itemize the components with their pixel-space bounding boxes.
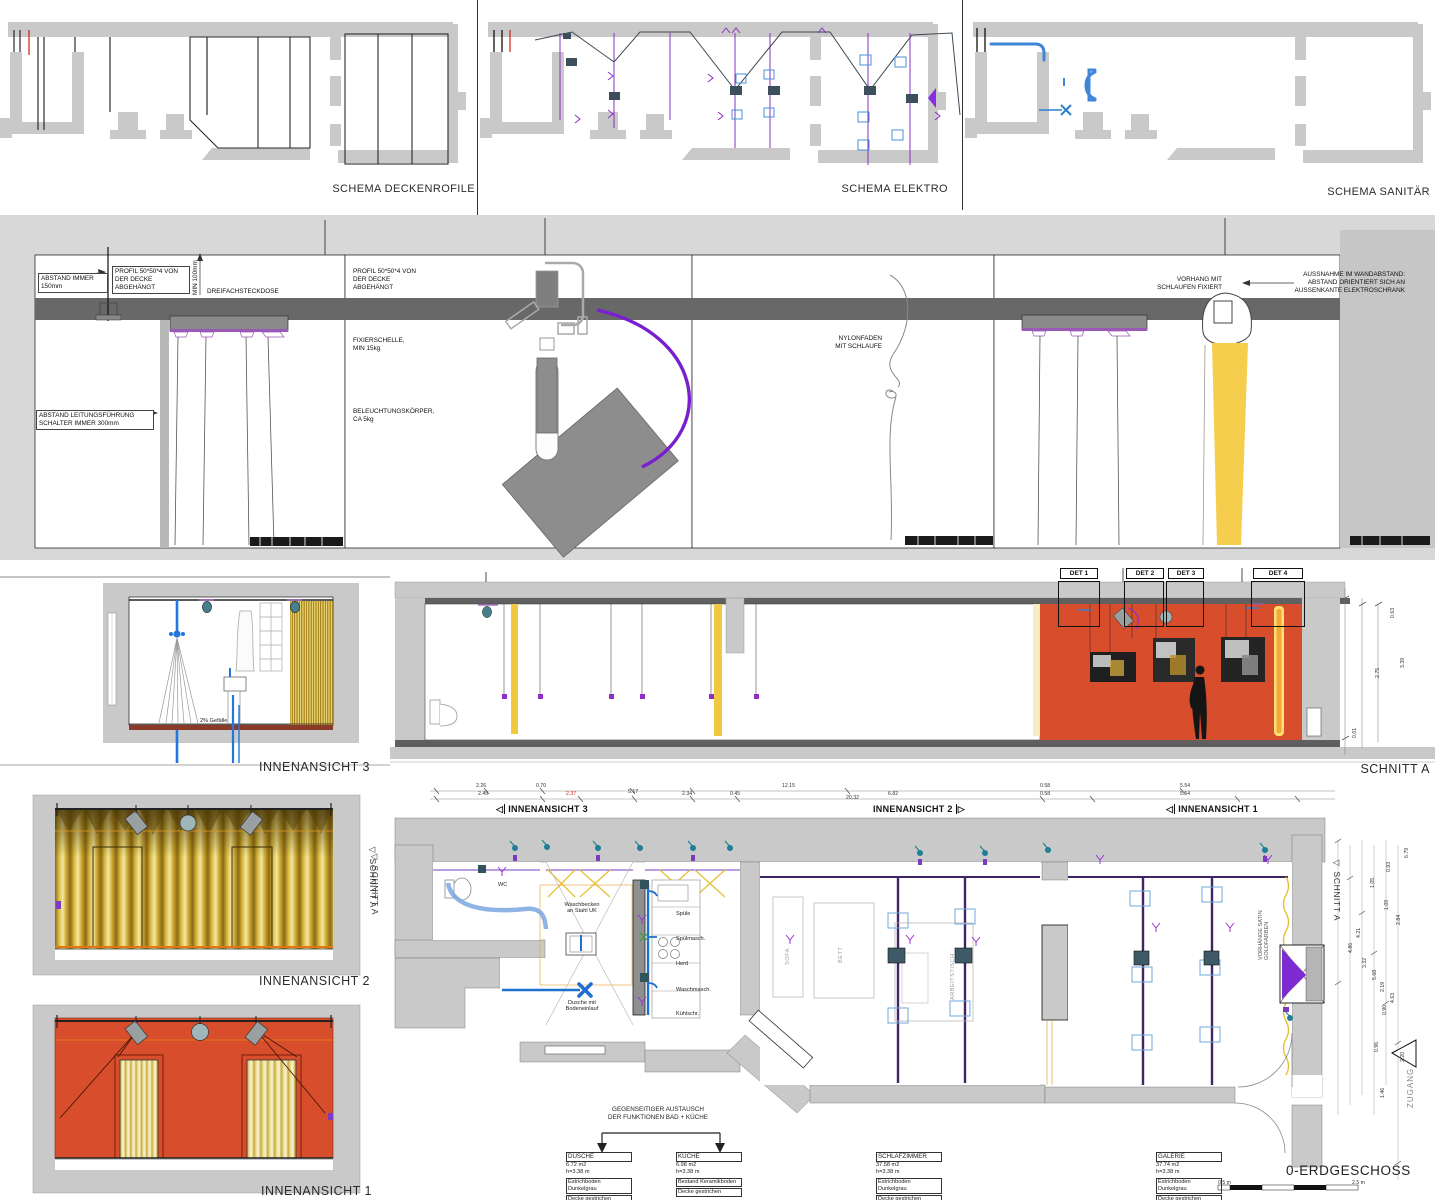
innenansicht2-label: INNENANSICHT 2: [240, 974, 370, 988]
room-floor: Estrichboden Dunkelgrau: [876, 1178, 942, 1195]
plan-marker-innenansicht3: ◁INNENANSICHT 3: [496, 804, 588, 815]
dim-t1-4: 5.54: [1180, 783, 1190, 789]
panel-divider-2: [962, 0, 963, 210]
schnitt-a-label: SCHNITT A: [1315, 762, 1430, 776]
schnitt-a-marker-plan-right: ◁ SCHNITT A: [1332, 858, 1342, 968]
schnitt-a-marker-plan-left: ◁ SCHNITT A: [370, 852, 380, 957]
dim-t2-2: 5.17: [628, 789, 638, 795]
schema-plans-drawing: [0, 0, 1435, 215]
dim-r-2: 1.05: [1370, 878, 1376, 888]
dim-t1-1: 0.70: [536, 783, 546, 789]
dim-r-7: 3.32: [1362, 958, 1368, 968]
det1-frame: [1058, 581, 1100, 627]
dim-r-9: 2.19: [1380, 982, 1386, 992]
room-info-galerie: GALERIE 37.74 m2 h=3.38 m Estrichboden D…: [1156, 1152, 1222, 1200]
floor-plan-drawing: [390, 785, 1435, 1200]
kitchen-label-spuelmasch: Spülmasch.: [676, 936, 705, 942]
plan-marker-innenansicht1: ◁INNENANSICHT 1: [1166, 804, 1258, 815]
dim-r-3: 1.09: [1384, 900, 1390, 910]
room-height: h=3.38 m: [566, 1169, 632, 1176]
aussnahme-note: AUSSNAHME IM WANDABSTAND: ABSTAND ORIENT…: [1280, 271, 1405, 295]
dim-r-0: 6.79: [1404, 848, 1410, 858]
det2-frame: [1124, 581, 1164, 627]
profil-decke-note-2: PROFIL 50*50*4 VON DER DECKE ABGEHÄNGT: [353, 268, 431, 292]
dreifachsteckdose-note: DREIFACHSTECKDOSE: [207, 288, 302, 296]
room-info-kueche: KÜCHE 6.98 m2 h=3.38 m Bestand Keramikbo…: [676, 1152, 742, 1197]
dim-r-13: 2.20: [1400, 1052, 1406, 1062]
dim-t2-1: 2.37: [566, 791, 576, 797]
det1-tag: DET 1: [1060, 568, 1098, 579]
schnitt-dim-2: 2.75: [1375, 668, 1381, 678]
bett-label: BETT: [838, 947, 844, 963]
schema-elektro-label: SCHEMA ELEKTRO: [800, 183, 948, 195]
room-floor: Estrichboden Dunkelgrau: [566, 1178, 632, 1195]
room-area: 6.72 m2: [566, 1162, 632, 1169]
room-name: SCHLAFZIMMER: [876, 1152, 942, 1162]
wc-label: WC: [498, 882, 507, 888]
architectural-sheet: SCHEMA DECKENROFILE SCHEMA ELEKTRO SCHEM…: [0, 0, 1435, 1200]
triangle-left-icon: ◁: [496, 804, 503, 814]
dim-t2-0: 2.45: [478, 791, 488, 797]
dim-t2-3: 2.34: [682, 791, 692, 797]
dim-r-8: 5.68: [1372, 970, 1378, 980]
room-name: GALERIE: [1156, 1152, 1222, 1162]
dim-r-10: 4.63: [1390, 993, 1396, 1003]
vorhang-schlaufen-note: VORHANG MIT SCHLAUFEN FIXIERT: [1146, 276, 1222, 292]
room-ceiling: Decke gestrichen: [566, 1195, 632, 1200]
plan-title: 0-ERDGESCHOSS: [1286, 1163, 1411, 1178]
dim-r-12: 0.96: [1374, 1042, 1380, 1052]
plan-marker-innenansicht2: INNENANSICHT 2▷: [873, 804, 965, 815]
room-height: h=3.38 m: [876, 1169, 942, 1176]
dim-r-5: 4.21: [1356, 928, 1362, 938]
sofa-label: SOFA: [785, 948, 791, 965]
profil-decke-note-1: PROFIL 50*50*4 VON DER DECKE ABGEHÄNGT: [112, 266, 190, 294]
dim-t2-6: 6.82: [888, 791, 898, 797]
room-height: h=3.38 m: [676, 1169, 742, 1176]
dim-r-4: 2.84: [1396, 915, 1402, 925]
scale-left-label: 0.5 m: [1218, 1180, 1231, 1186]
fixierschelle-note: FIXIERSCHELLE, MIN 15kg: [353, 337, 431, 353]
kitchen-label-waschmasch: Waschmasch.: [676, 987, 711, 993]
arbeitstisch-label: ARBEITSTISCH: [950, 953, 956, 1000]
dim-t1-3: 0.58: [1040, 783, 1050, 789]
room-info-dusche: DUSCHE 6.72 m2 h=3.38 m Estrichboden Dun…: [566, 1152, 632, 1200]
dim-r-6: 4.86: [1348, 943, 1354, 953]
vorhaenge-label: VORHÄNGE SATIN GOLDFARBEN: [1258, 910, 1270, 960]
sanitaer-pipes: [977, 28, 1095, 115]
schema-sanitaer-label: SCHEMA SANITÄR: [1282, 186, 1430, 198]
interior-views-drawing: [0, 555, 390, 1200]
det2-tag: DET 2: [1126, 568, 1164, 579]
waschbecken-label: Waschbecken an Stahl UK: [558, 902, 606, 914]
scale-bar: [1218, 1185, 1358, 1190]
beleuchtungskoerper-note: BELEUCHTUNGSKÖRPER, CA 5kg: [353, 408, 443, 424]
innenansicht1-label: INNENANSICHT 1: [242, 1184, 372, 1198]
room-area: 6.98 m2: [676, 1162, 742, 1169]
schnitt-dim-0: 0.63: [1390, 608, 1396, 618]
triangle-left-icon: ◁: [1166, 804, 1173, 814]
room-area: 37.74 m2: [1156, 1162, 1222, 1169]
dim-t2-7: 0.58: [1040, 791, 1050, 797]
det4-frame: [1251, 581, 1305, 627]
dim-r-1: 0.93: [1386, 862, 1392, 872]
room-ceiling: Decke gestrichen: [676, 1188, 742, 1197]
min-100mm-note: MIN 100mm: [192, 260, 200, 295]
detail-band-drawing: [0, 215, 1435, 560]
panel-divider-1: [477, 0, 478, 215]
dim-r-11: 0.90: [1382, 1005, 1388, 1015]
schnitt-dim-1: 3.39: [1400, 658, 1406, 668]
kitchen-label-herd: Herd: [676, 961, 688, 967]
innenansicht3-label: INNENANSICHT 3: [240, 760, 370, 774]
kitchen-label-kuehlschr: Kühlschr.: [676, 1011, 699, 1017]
abstand-leitung-note: ABSTAND LEITUNGSFÜHRUNG SCHALTER IMMER 3…: [36, 410, 154, 430]
room-floor: Bestand Keramikboden: [676, 1178, 742, 1187]
room-area: 37.58 m2: [876, 1162, 942, 1169]
det3-frame: [1166, 581, 1204, 627]
dim-r-14: 1.46: [1380, 1088, 1386, 1098]
schema-deckenprofile-label: SCHEMA DECKENROFILE: [330, 183, 475, 195]
room-name: KÜCHE: [676, 1152, 742, 1162]
innenansicht2-drawing: [33, 795, 360, 975]
nylonfaden-note: NYLONFADEN MIT SCHLAUFE: [820, 335, 882, 351]
room-floor: Estrichboden Dunkelgrau: [1156, 1178, 1222, 1195]
dim-t2-5: 20.32: [846, 795, 859, 801]
room-height: h=3.38 m: [1156, 1169, 1222, 1176]
schnitt-dim-3: 0.01: [1352, 728, 1358, 738]
dim-t1-0: 2.26: [476, 783, 486, 789]
scale-right-label: 2.5 m: [1352, 1180, 1365, 1186]
triangle-right-icon: ▷: [958, 804, 965, 814]
room-info-schlafzimmer: SCHLAFZIMMER 37.58 m2 h=3.38 m Estrichbo…: [876, 1152, 942, 1200]
dim-t2-8: 5.54: [1180, 791, 1190, 797]
innenansicht1-drawing: [33, 1005, 360, 1193]
gefaelle-note: 2% Gefälle: [200, 718, 227, 724]
abstand-immer-note: ABSTAND IMMER 150mm: [38, 273, 108, 293]
dim-t1-2: 12.15: [782, 783, 795, 789]
exchange-note: GEGENSEITIGER AUSTAUSCH DER FUNKTIONEN B…: [588, 1106, 728, 1122]
innenansicht3-drawing: [103, 583, 359, 763]
det4-tag: DET 4: [1253, 568, 1303, 579]
room-ceiling: Decke gestrichen: [1156, 1195, 1222, 1200]
det3-tag: DET 3: [1168, 568, 1204, 579]
room-ceiling: Decke gestrichen: [876, 1195, 942, 1200]
zugang-label: ZUGANG: [1406, 1068, 1415, 1108]
room-name: DUSCHE: [566, 1152, 632, 1162]
dim-t2-4: 0.45: [730, 791, 740, 797]
kitchen-label-spuele: Spüle: [676, 911, 690, 917]
dusche-note-label: Dusche mit Bodeneinlauf: [558, 1000, 606, 1012]
